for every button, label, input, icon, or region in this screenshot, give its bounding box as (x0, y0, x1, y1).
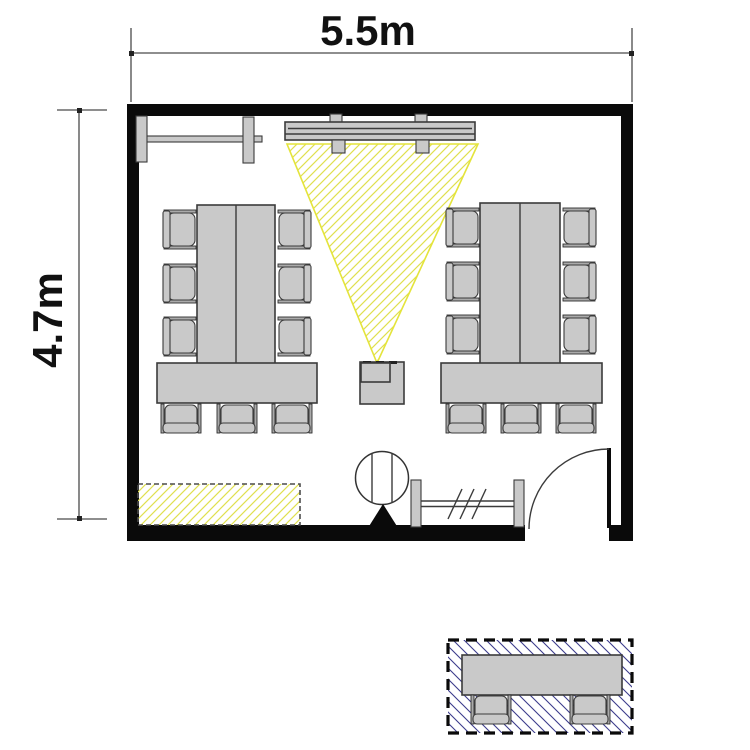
column-circle (356, 452, 409, 505)
chair (471, 695, 511, 724)
floor-plan-page: 5.5m 4.7m (0, 0, 750, 750)
chair (563, 262, 596, 301)
chair (163, 264, 196, 303)
screen-bracket (416, 140, 429, 153)
glass-mark (472, 489, 486, 519)
wall-bottom-door-jamb (609, 525, 633, 541)
glass-partition (411, 480, 524, 527)
chair (217, 404, 257, 433)
floor-plan-canvas: 5.5m 4.7m (0, 0, 750, 750)
entry-door (529, 448, 611, 529)
chair (446, 315, 479, 354)
chair (501, 404, 541, 433)
column-with-pointer (356, 452, 409, 532)
width-dimension-label: 5.5m (320, 7, 416, 54)
glass-mark (460, 489, 474, 519)
wall-mounted-whiteboard (136, 116, 262, 163)
north-pointer (366, 504, 400, 531)
wall-top (127, 104, 633, 116)
dimension-tick (129, 51, 134, 56)
dimension-tick (629, 51, 634, 56)
screen-bracket (332, 140, 345, 153)
chair (563, 208, 596, 247)
chair (278, 210, 311, 249)
projector-lens-unit (361, 363, 390, 382)
wall-left (127, 104, 139, 541)
height-dimension-label: 4.7m (24, 272, 71, 368)
whiteboard-bracket (136, 116, 147, 162)
chair (570, 695, 610, 724)
projector (360, 361, 404, 404)
chair (563, 315, 596, 354)
chair (556, 404, 596, 433)
door-leaf (607, 448, 611, 528)
chair (278, 317, 311, 356)
conference-table-right (441, 203, 602, 433)
wall-bottom (127, 525, 525, 541)
dimension-tick (77, 108, 82, 113)
table-end (157, 363, 317, 403)
door-swing-arc (529, 449, 609, 529)
left-dimension: 4.7m (24, 108, 107, 521)
chair (446, 208, 479, 247)
chair (161, 404, 201, 433)
whiteboard-bracket (243, 117, 254, 163)
conference-table-left (157, 205, 317, 433)
chair (278, 264, 311, 303)
sideboard-hatched (138, 484, 300, 525)
screen-housing (285, 122, 475, 140)
top-dimension: 5.5m (129, 7, 634, 102)
chair (163, 317, 196, 356)
chair (163, 210, 196, 249)
dimension-tick (77, 516, 82, 521)
glass-mark (448, 489, 462, 519)
chair (446, 404, 486, 433)
table-end (441, 363, 602, 403)
partition-post (514, 480, 524, 527)
partition-post (411, 480, 421, 527)
chair (272, 404, 312, 433)
chair (446, 262, 479, 301)
external-table-area (448, 640, 632, 733)
external-table (462, 655, 622, 695)
wall-right (621, 104, 633, 541)
